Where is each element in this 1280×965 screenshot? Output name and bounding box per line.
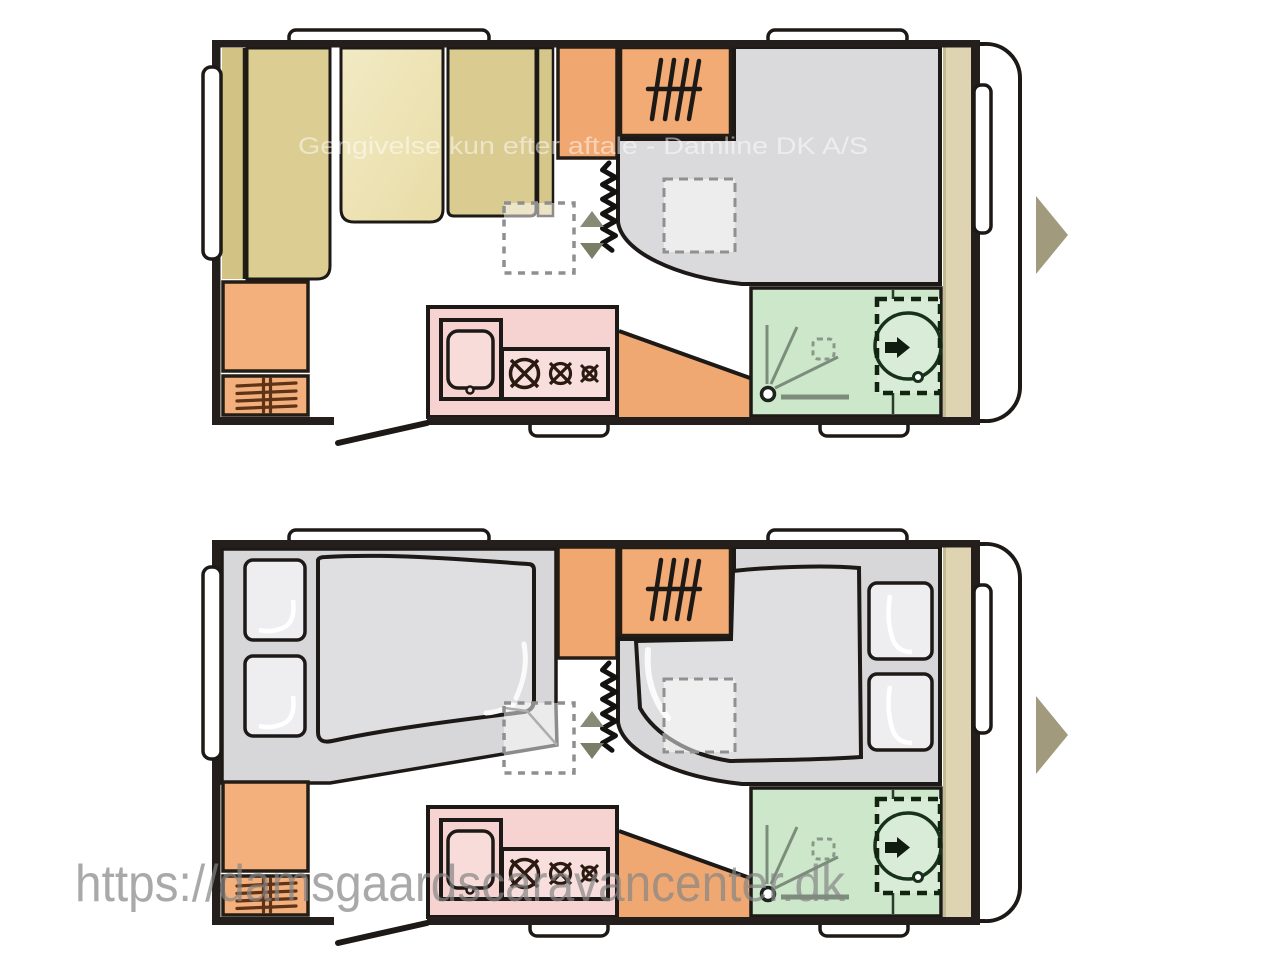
svg-text:Gengivelse kun efter aftale -: Gengivelse kun efter aftale - Damline DK… bbox=[298, 133, 868, 160]
svg-text:https://damsgaardscaravancente: https://damsgaardscaravancenter.dk bbox=[75, 855, 846, 913]
